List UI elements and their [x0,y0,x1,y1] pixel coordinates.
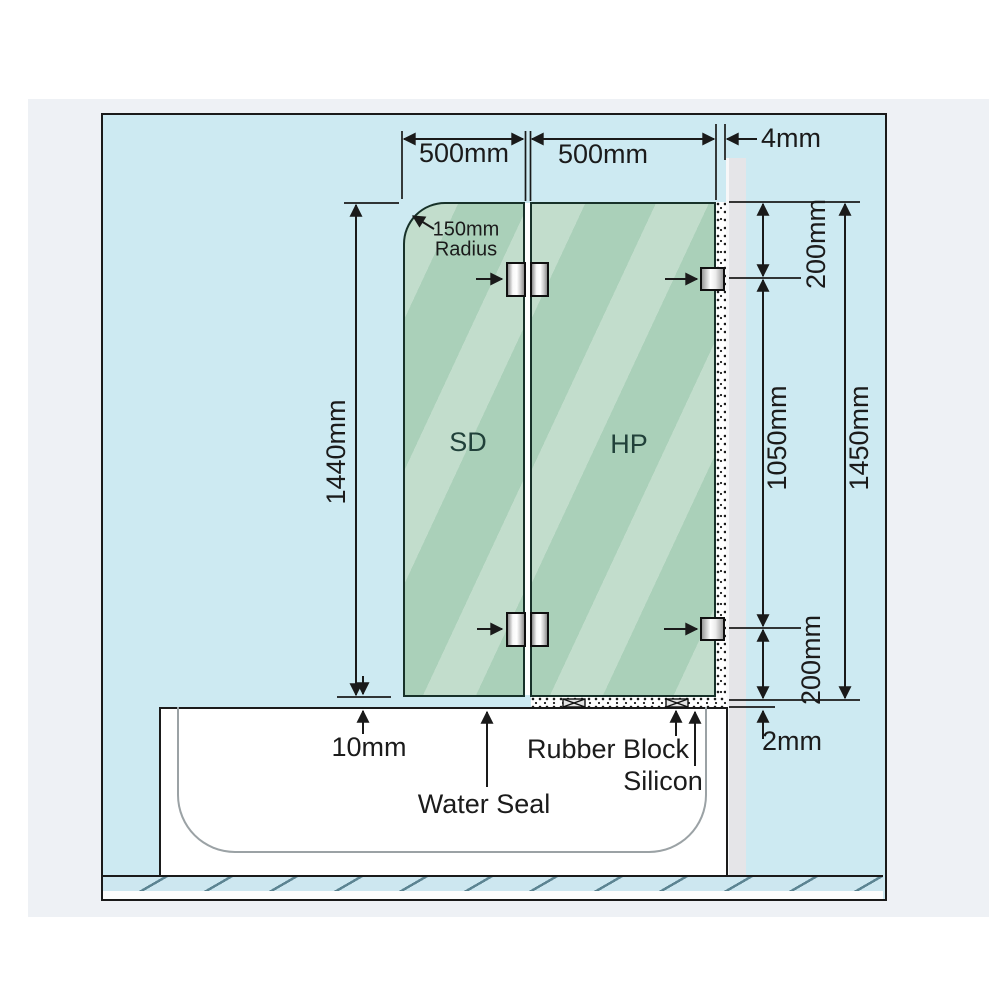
hinge-plate-right [530,612,550,647]
hinge-plate-left [506,262,526,297]
hinge-plate-right [530,262,550,297]
annotation-silicon: Silicon [623,768,703,796]
dim-label-right-top-offset: 200mm [803,199,831,289]
dim-label-width-left: 500mm [419,140,509,168]
dim-label-height-left: 1440mm [323,399,351,504]
panel-label-sd: SD [449,429,487,457]
hinge-top [506,262,549,297]
diagram-canvas: 500mm 500mm 4mm 150mm Radius 1440mm 200m… [0,0,1000,1000]
hinge-plate-left [506,612,526,647]
wall [726,158,746,875]
dim-label-bottom-gap: 10mm [331,734,406,762]
dim-label-right-bottom-offset: 200mm [798,615,826,705]
dim-label-silicon-thickness: 2mm [762,728,822,756]
dim-label-wall-gap: 4mm [761,125,821,153]
hinge-bottom [506,612,549,647]
wall-bracket-top [700,267,725,291]
dim-label-right-middle: 1050mm [764,385,792,490]
panel-label-hp: HP [610,431,648,459]
silicon-strip-bottom [531,697,727,707]
dim-label-width-right: 500mm [558,141,648,169]
annotation-rubber-block: Rubber Block [527,736,689,764]
annotation-water-seal: Water Seal [418,791,551,819]
corner-radius-line2: Radius [433,240,500,260]
corner-radius-label: 150mm Radius [433,220,500,261]
floor-strip [103,891,883,899]
wall-bracket-bottom [700,617,725,641]
dim-label-right-total: 1450mm [846,385,874,490]
corner-radius-line1: 150mm [433,220,500,240]
